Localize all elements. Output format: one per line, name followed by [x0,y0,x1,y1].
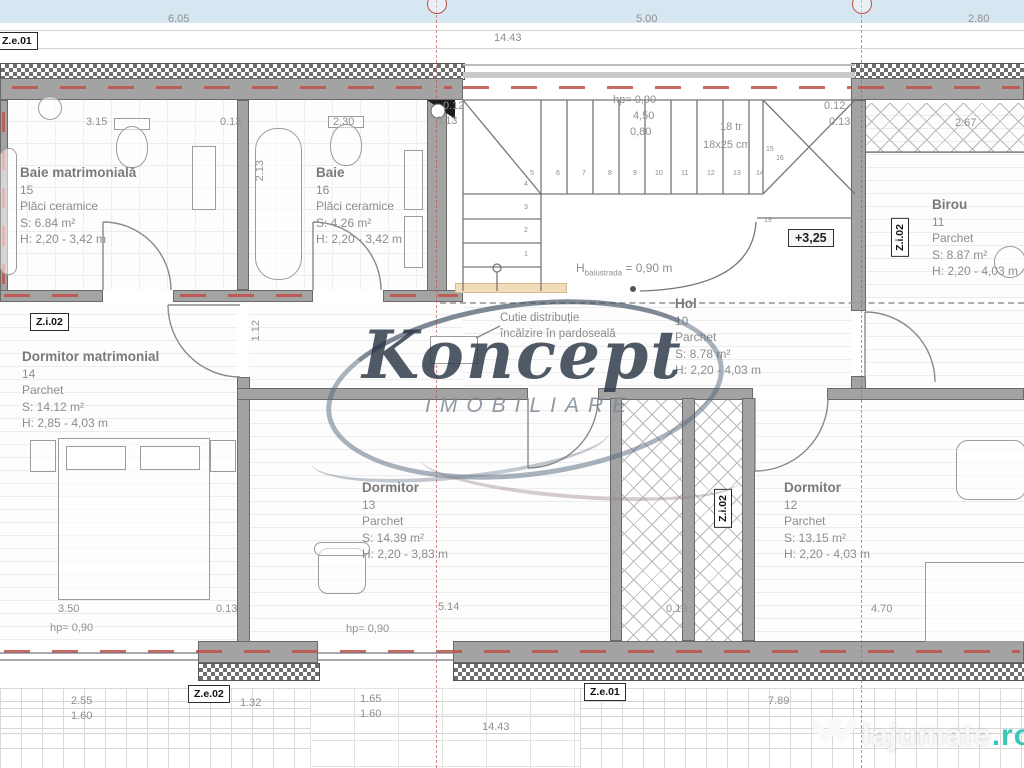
dimension-label: 1.65 [360,693,381,705]
zone-label-z.e.01: Z.e.01 [584,683,626,701]
room-label-15: Baie matrimonială15Plăci ceramiceS: 6.84… [20,165,136,248]
room-16-rheight: H: 2,20 - 3,42 m [316,231,402,248]
balustrade-h: H [576,261,585,275]
stair-step-number: 11 [681,170,688,177]
dimension-label: 2.30 [333,116,354,128]
room-12-rname: Dormitor [784,480,870,497]
pivot-dot [630,286,636,292]
heating-note-line1: Cutie distribuție [500,310,616,326]
stair-step-number: 8 [608,170,612,177]
room-13-rnum: 13 [362,497,448,514]
room-11-rheight: H: 2,20 - 4,03 m [932,263,1018,280]
site-watermark-text: lajumate.ro [862,719,1024,753]
dimension-label: 0.12 [824,100,845,112]
room-13-rarea: S: 14.39 m² [362,530,448,547]
room-12-rarea: S: 13.15 m² [784,530,870,547]
room-16-rnum: 16 [316,182,402,199]
room-14-rfloor: Parchet [22,382,159,399]
balustrade-value: = 0,90 m [622,261,672,275]
room-16-rarea: S: 4.26 m² [316,215,402,232]
room-15-rarea: S: 6.84 m² [20,215,136,232]
site-tld: .ro [992,719,1024,752]
room-13-rfloor: Parchet [362,513,448,530]
stair-text: 18 tr [720,121,742,133]
room-label-13: Dormitor13ParchetS: 14.39 m²H: 2,20 - 3,… [362,480,448,563]
room-label-12: Dormitor12ParchetS: 13.15 m²H: 2,20 - 4,… [784,480,870,563]
level-label: +3,25 [788,229,834,247]
room-10-rfloor: Parchet [675,329,761,346]
room-10-rname: Hol [675,296,761,313]
dimension-label: 14.43 [482,721,510,733]
dimension-label: hp= 0,90 [346,623,389,635]
room-12-rfloor: Parchet [784,513,870,530]
zone-label-z.i.02: Z.i.02 [891,218,909,257]
stair-step-number: 5 [530,170,534,177]
dimension-label: 0.13 [220,116,241,128]
room-label-11: Birou11ParchetS: 8.87 m²H: 2,20 - 4,03 m [932,197,1018,280]
dimension-label: 1.60 [360,708,381,720]
stair-step-number: 12 [707,170,715,177]
lajumate-logo-icon [812,716,858,756]
room-15-rnum: 15 [20,182,136,199]
room-label-10: Hol10ParchetS: 8.78 m²H: 2,20 - 4,03 m [675,296,761,379]
dimension-label: 2.80 [968,13,989,25]
dimension-label: 0.13 [216,603,237,615]
stair-text: 18x25 cm [703,139,751,151]
dimension-label: 2.67 [955,117,976,129]
dimension-label: 1.60 [71,710,92,722]
dimension-label: 6.05 [168,13,189,25]
dimension-label: 0.12 [443,100,464,112]
stair-step-number: 16 [776,155,784,162]
dimension-label: 0.13 [666,603,687,615]
room-16-rname: Baie [316,165,402,182]
zone-label-z.i.02: Z.i.02 [30,313,69,331]
room-14-rheight: H: 2,85 - 4,03 m [22,415,159,432]
site-watermark: lajumate.ro [812,716,1024,756]
dimension-label: 5.00 [636,13,657,25]
room-10-rheight: H: 2,20 - 4,03 m [675,362,761,379]
door-arcs [103,222,935,471]
dimension-label: 1.32 [240,697,261,709]
stair-step-number: 3 [524,204,528,211]
zone-label-z.e.02: Z.e.02 [188,685,230,703]
stair-step-number: 1 [524,251,528,258]
stair-step-number: 9 [633,170,637,177]
zone-label-z.i.02: Z.i.02 [714,489,732,528]
room-14-rarea: S: 14.12 m² [22,399,159,416]
floor-plan: Cutie distribuție încălzire în pardoseal… [0,0,1024,768]
room-label-16: Baie16Plăci ceramiceS: 4.26 m²H: 2,20 - … [316,165,402,248]
heating-note-line2: încălzire în pardoseală [500,326,616,342]
room-11-rname: Birou [932,197,1018,214]
stair-step-number: 2 [524,227,528,234]
dimension-label: 0.13 [436,115,457,127]
room-10-rarea: S: 8.78 m² [675,346,761,363]
stair-step-number: 19 [764,217,772,224]
stair-step-number: 13 [733,170,741,177]
room-16-rfloor: Plăci ceramice [316,198,402,215]
dimension-label: 0.13 [829,116,850,128]
room-10-rnum: 10 [675,313,761,330]
room-11-rarea: S: 8.87 m² [932,247,1018,264]
heating-note: Cutie distribuție încălzire în pardoseal… [500,310,616,342]
balustrade-sub: balustrada [585,268,622,277]
site-name: lajumate [862,719,992,752]
dimension-label: 3.50 [58,603,79,615]
room-label-14: Dormitor matrimonial14ParchetS: 14.12 m²… [22,349,159,432]
room-15-rname: Baie matrimonială [20,165,136,182]
dimension-label: hp= 0,90 [50,622,93,634]
stair-text: 0,80 [630,126,651,138]
dimension-label: 5.14 [438,601,459,613]
room-13-rname: Dormitor [362,480,448,497]
dimension-label: 2.55 [71,695,92,707]
dimension-label: 3.15 [86,116,107,128]
room-15-rfloor: Plăci ceramice [20,198,136,215]
room-12-rheight: H: 2,20 - 4,03 m [784,546,870,563]
dimension-label: 4.70 [871,603,892,615]
zone-label-z.e.01: Z.e.01 [0,32,38,50]
stair-step-number: 15 [766,146,774,153]
room-15-rheight: H: 2,20 - 3,42 m [20,231,136,248]
room-11-rnum: 11 [932,214,1018,231]
stair-step-number: 14 [756,170,764,177]
room-13-rheight: H: 2,20 - 3,83 m [362,546,448,563]
balustrade-height-label: Hbalustrada = 0,90 m [576,261,672,277]
dimension-label: 2.13 [254,160,266,181]
dimension-label: 14.43 [494,32,522,44]
room-14-rname: Dormitor matrimonial [22,349,159,366]
room-11-rfloor: Parchet [932,230,1018,247]
stair-step-number: 7 [582,170,586,177]
dimension-label: 1.12 [250,320,262,341]
room-12-rnum: 12 [784,497,870,514]
stair-text: hp= 0,90 [613,94,656,106]
stair-step-number: 10 [655,170,663,177]
stair-step-number: 4 [524,181,528,188]
stair-step-number: 6 [556,170,560,177]
room-14-rnum: 14 [22,366,159,383]
dimension-label: 7.89 [768,695,789,707]
stair-text: 4,50 [633,110,654,122]
